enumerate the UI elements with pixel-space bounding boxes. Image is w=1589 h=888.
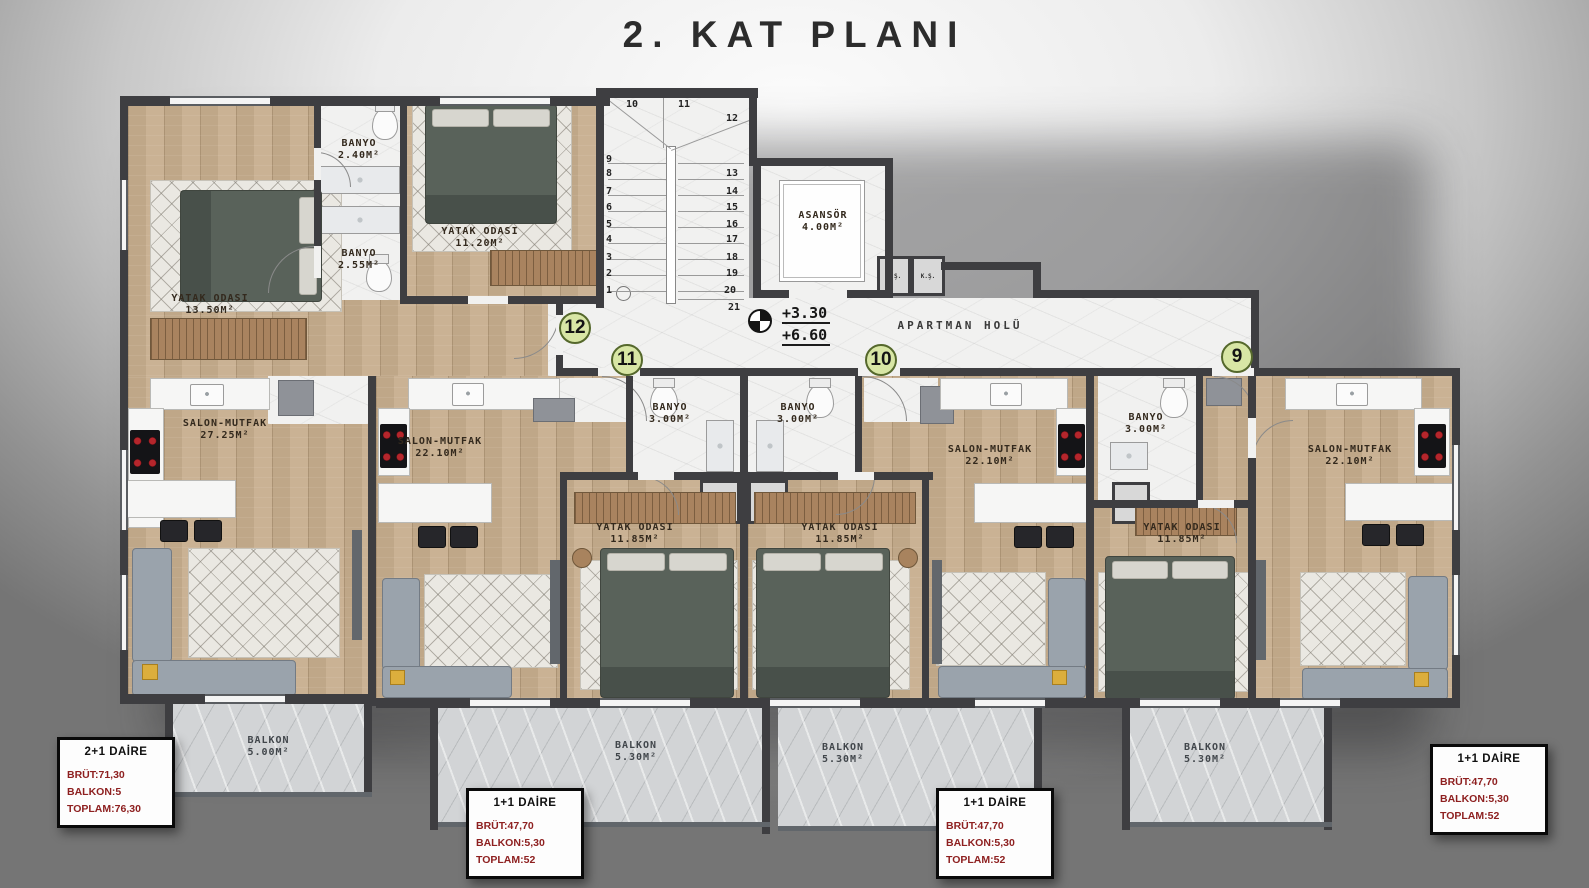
door-mat-a: [278, 380, 314, 416]
wardrobe-bedroom-c: [754, 492, 916, 524]
stair-number-16: 16: [726, 220, 738, 230]
room-label-bedroom-a2: YATAK ODASI11.20M²: [415, 226, 545, 250]
sink-banyo-a2: [320, 206, 400, 234]
side-table-bedroom-c: [898, 548, 918, 568]
door-mat-b: [533, 398, 575, 422]
balcony-wall: [1324, 704, 1332, 830]
kitchen-island-c: [974, 483, 1088, 523]
door-opening-bedroom-c: [838, 472, 874, 480]
stair-start-ring: [616, 286, 631, 301]
stair-step-line: [608, 259, 666, 260]
stair-number-18: 18: [726, 253, 738, 263]
sofa-b-vertical: [382, 578, 420, 670]
sofa-a-yellow-pillow: [142, 664, 158, 680]
info-box-title: 1+1 DAİRE: [1440, 753, 1538, 765]
wall: [626, 376, 633, 480]
sofa-a-vertical: [132, 548, 172, 662]
room-label-salon-a: SALON-MUTFAK27.25M²: [150, 418, 300, 442]
window: [120, 450, 128, 530]
wall: [922, 472, 929, 706]
door-opening-bedroom-a2: [468, 296, 508, 304]
info-balkon: BALKON:5,30: [476, 835, 574, 852]
window: [440, 96, 550, 106]
wall: [753, 158, 761, 298]
room-label-bedroom-a1: YATAK ODASI13.50M²: [150, 293, 270, 317]
stair-number-15: 15: [726, 203, 738, 213]
sink-banyo-c: [756, 420, 784, 472]
tv-unit-d: [1256, 560, 1266, 660]
bed-a2: [425, 104, 557, 224]
stool-d-1: [1362, 524, 1390, 546]
stair-step-line: [608, 211, 666, 212]
room-label-bedroom-b: YATAK ODASI11.85M²: [565, 522, 705, 546]
wall: [740, 376, 748, 706]
page-title: 2. KAT PLANI: [0, 14, 1589, 56]
unit-badge-9: 9: [1221, 341, 1253, 373]
side-table-bedroom-b: [572, 548, 592, 568]
tv-unit-c: [932, 560, 942, 664]
info-toplam: TOPLAM:52: [1440, 808, 1538, 825]
info-balkon: BALKON:5: [67, 784, 165, 801]
stool-a-1: [160, 520, 188, 542]
wall: [1033, 290, 1259, 298]
kitchen-island-a: [124, 480, 236, 518]
room-label-balkon-c: BALKON5.30M²: [778, 742, 908, 766]
info-toplam: TOPLAM:76,30: [67, 801, 165, 818]
stair-number-3: 3: [606, 253, 612, 263]
kitchen-island-b: [378, 483, 492, 523]
stair-line: [663, 96, 664, 148]
wall: [596, 88, 758, 98]
stair-number-13: 13: [726, 169, 738, 179]
balcony-door-d: [1280, 698, 1340, 708]
balcony-wall: [762, 706, 770, 834]
info-brut: BRÜT:47,70: [946, 818, 1044, 835]
stair-number-20: 20: [724, 286, 736, 296]
unit-badge-12: 12: [559, 312, 591, 344]
bed-b: [600, 548, 734, 698]
door-opening-salon-d: [1248, 418, 1256, 458]
sofa-d-vertical: [1408, 576, 1448, 670]
wall: [560, 472, 567, 706]
sink-banyo-b: [706, 420, 734, 472]
wall: [941, 262, 1041, 270]
stair-number-14: 14: [726, 187, 738, 197]
stair-number-8: 8: [606, 169, 612, 179]
dresser-bedroom-a2: [490, 250, 604, 286]
info-box-title: 1+1 DAİRE: [476, 797, 574, 809]
door-opening-bedroom-b: [638, 472, 674, 480]
sofa-c-vertical: [1048, 578, 1086, 668]
info-box-title: 1+1 DAİRE: [946, 797, 1044, 809]
room-label-balkon-a: BALKON5.00M²: [165, 735, 372, 759]
elevator-door-opening: [789, 290, 847, 298]
stair-number-2: 2: [606, 269, 612, 279]
wall: [1251, 290, 1259, 376]
wall: [749, 88, 757, 166]
room-label-banyo-a2: BANYO2.55M²: [316, 248, 402, 272]
tv-unit-b: [550, 560, 560, 664]
unit-badge-11: 11: [611, 344, 643, 376]
room-label-salon-d: SALON-MUTFAK22.10M²: [1270, 444, 1430, 468]
stair-number-19: 19: [726, 269, 738, 279]
stair-step-line: [678, 299, 744, 300]
stair-number-12: 12: [726, 114, 738, 124]
wall: [1452, 368, 1460, 706]
kitchen-sink-b: [452, 383, 484, 406]
wall: [1251, 368, 1460, 376]
balcony-door-a: [205, 694, 285, 704]
stool-c-2: [1046, 526, 1074, 548]
info-balkon: BALKON:5,30: [946, 835, 1044, 852]
balcony-railing: [1130, 822, 1332, 827]
stair-step-line: [608, 195, 666, 196]
stair-step-line: [608, 291, 666, 292]
stair-number-11: 11: [678, 100, 690, 110]
level-values: +3.30 +6.60: [782, 305, 830, 349]
kitchen-sink-a: [190, 384, 224, 406]
window: [170, 96, 270, 106]
room-label-banyo-c: BANYO3.00M²: [756, 402, 840, 426]
info-box-title: 2+1 DAİRE: [67, 746, 165, 758]
toilet-banyo-a1: [372, 108, 398, 140]
info-box-2plus1: 2+1 DAİRE BRÜT:71,30 BALKON:5 TOPLAM:76,…: [57, 737, 175, 828]
rug-salon-b: [424, 574, 558, 668]
balcony-door-c: [975, 698, 1045, 708]
room-label-bedroom-c: YATAK ODASI11.85M²: [770, 522, 910, 546]
sofa-d-yellow-pillow: [1414, 672, 1429, 687]
info-box-1plus1-left: 1+1 DAİRE BRÜT:47,70 BALKON:5,30 TOPLAM:…: [466, 788, 584, 879]
stair-number-4: 4: [606, 235, 612, 245]
rug-salon-a: [188, 548, 340, 658]
room-label-banyo-a1: BANYO2.40M²: [316, 138, 402, 162]
floor-plan-scene: 2. KAT PLANI: [0, 0, 1589, 888]
kitchen-sink-c: [990, 383, 1022, 406]
window-bedroom-c: [770, 698, 860, 708]
room-label-bedroom-d: YATAK ODASI11.85M²: [1112, 522, 1252, 546]
wall: [855, 376, 862, 480]
room-label-balkon-d: BALKON5.30M²: [1135, 742, 1275, 766]
stair-number-17: 17: [726, 235, 738, 245]
sink-banyo-d: [1110, 442, 1148, 470]
wall: [368, 376, 376, 706]
kitchen-island-d: [1345, 483, 1453, 521]
balcony-door-b: [470, 698, 550, 708]
window: [120, 575, 128, 650]
stair-step-line: [608, 227, 666, 228]
stair-center-post: [666, 146, 676, 304]
wall: [596, 96, 604, 308]
rug-salon-d: [1300, 572, 1406, 666]
stool-c-1: [1014, 526, 1042, 548]
balcony-wall: [430, 706, 438, 830]
rug-salon-c: [936, 572, 1046, 666]
room-label-banyo-d: BANYO3.00M²: [1098, 412, 1194, 436]
wall: [885, 158, 893, 298]
window: [1452, 575, 1460, 655]
stool-a-2: [194, 520, 222, 542]
wall: [1196, 376, 1203, 508]
balcony-railing: [165, 792, 372, 797]
door-opening-bedroom-d: [1198, 500, 1234, 508]
stair-step-line: [608, 163, 666, 164]
window: [1452, 445, 1460, 530]
room-label-balkon-b: BALKON5.30M²: [466, 740, 806, 764]
balcony-wall: [1122, 704, 1130, 830]
stair-step-line: [678, 163, 744, 164]
shaft-ks: K.Ş.: [911, 256, 945, 296]
room-label-elevator: ASANSÖR4.00M²: [771, 210, 875, 234]
stair-number-10: 10: [626, 100, 638, 110]
level-upper: +3.30: [782, 305, 830, 324]
bed-d: [1105, 556, 1235, 700]
info-brut: BRÜT:71,30: [67, 767, 165, 784]
stool-b-1: [418, 526, 446, 548]
tv-unit-a: [352, 530, 362, 640]
info-toplam: TOPLAM:52: [946, 852, 1044, 869]
level-lower: +6.60: [782, 327, 830, 346]
room-label-salon-b: SALON-MUTFAK22.10M²: [365, 436, 515, 460]
info-balkon: BALKON:5,30: [1440, 791, 1538, 808]
stair-step-line: [608, 243, 666, 244]
stair-step-line: [678, 179, 744, 180]
stair-number-21: 21: [728, 303, 740, 313]
stool-d-2: [1396, 524, 1424, 546]
info-brut: BRÜT:47,70: [1440, 774, 1538, 791]
info-box-1plus1-middle: 1+1 DAİRE BRÜT:47,70 BALKON:5,30 TOPLAM:…: [936, 788, 1054, 879]
bed-c: [756, 548, 890, 698]
room-label-banyo-b: BANYO3.00M²: [628, 402, 712, 426]
wall: [753, 158, 893, 166]
stair-number-5: 5: [606, 220, 612, 230]
info-brut: BRÜT:47,70: [476, 818, 574, 835]
room-label-hall: APARTMAN HOLÜ: [858, 319, 1062, 332]
info-toplam: TOPLAM:52: [476, 852, 574, 869]
stair-number-6: 6: [606, 203, 612, 213]
room-label-salon-c: SALON-MUTFAK22.10M²: [910, 444, 1070, 468]
window-bedroom-b: [600, 698, 690, 708]
stair-number-1: 1: [606, 286, 612, 296]
kitchen-sink-d: [1336, 383, 1368, 406]
dresser-bedroom-a1: [150, 318, 307, 360]
shaft-ks-label: K.Ş.: [914, 259, 942, 293]
window: [120, 180, 128, 250]
sofa-c-yellow-pillow: [1052, 670, 1067, 685]
wall: [400, 96, 407, 304]
info-box-1plus1-right: 1+1 DAİRE BRÜT:47,70 BALKON:5,30 TOPLAM:…: [1430, 744, 1548, 835]
stool-b-2: [450, 526, 478, 548]
unit-badge-10: 10: [865, 344, 897, 376]
stair-step-line: [608, 179, 666, 180]
wall: [560, 368, 1259, 376]
stair-number-7: 7: [606, 187, 612, 197]
wall: [1086, 376, 1094, 706]
stair-step-line: [608, 275, 666, 276]
window-bedroom-d: [1140, 698, 1220, 708]
sofa-b-yellow-pillow: [390, 670, 405, 685]
level-crosshair-icon: [748, 309, 772, 333]
stair-number-9: 9: [606, 155, 612, 165]
floor-corridor: [548, 298, 1251, 376]
